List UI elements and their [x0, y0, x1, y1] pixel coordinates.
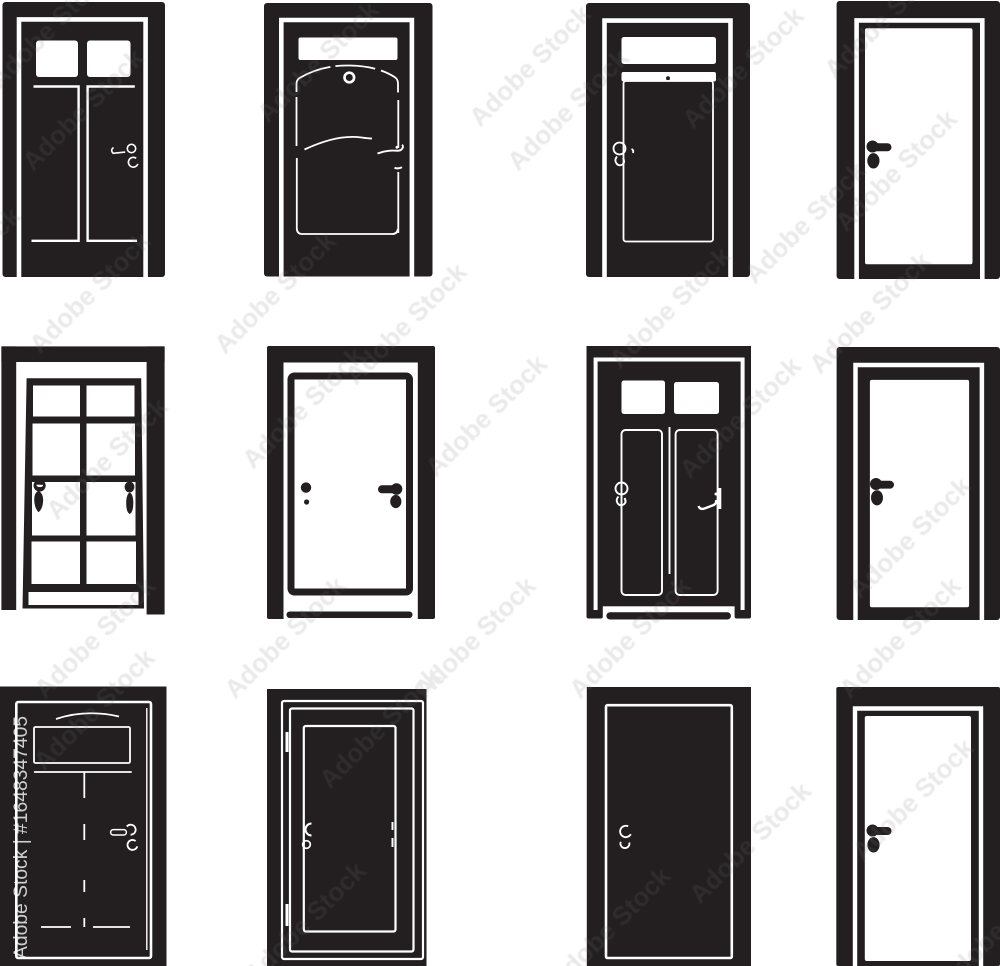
svg-text:Adobe Stock | #1648347405: Adobe Stock | #1648347405	[11, 716, 32, 959]
